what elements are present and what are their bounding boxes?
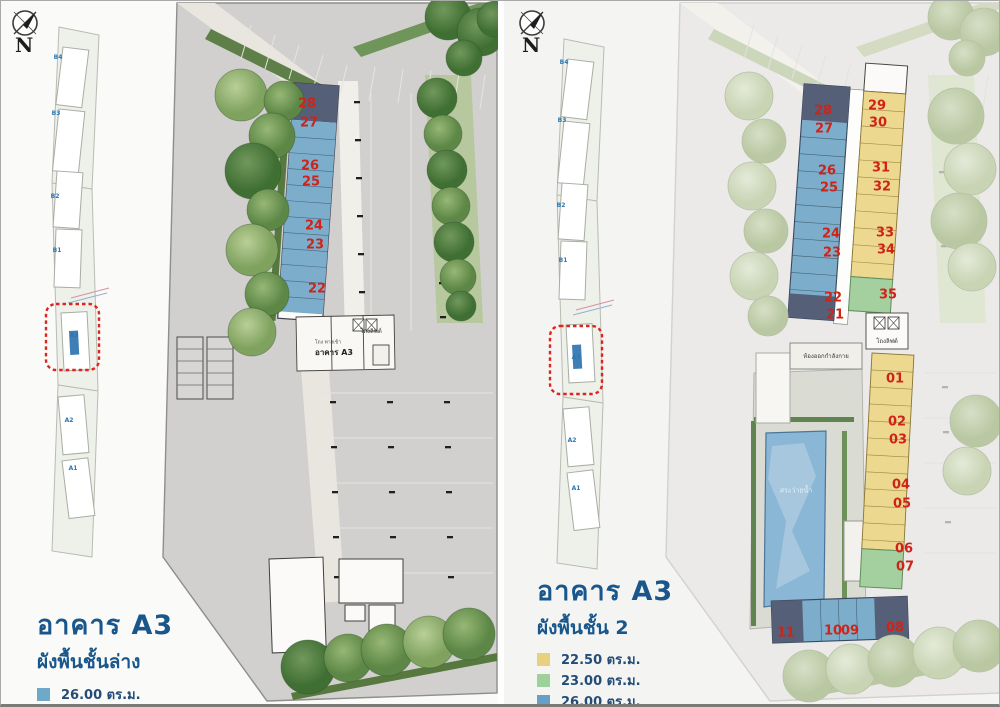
lobby-block — [756, 353, 790, 423]
compass-north-label: N — [522, 33, 540, 57]
legend: 26.00 ตร.ม. 26.50 ตร.ม. — [37, 683, 173, 707]
legend-swatch — [537, 674, 550, 687]
legend-item: 22.50 ตร.ม. — [537, 649, 673, 670]
legend-item: 23.00 ตร.ม. — [537, 670, 673, 691]
minimap-site-strip — [46, 27, 109, 557]
building-a3-floor2-upper — [788, 59, 908, 327]
legend-item: 26.00 ตร.ม. — [537, 691, 673, 707]
legend-label: 22.50 ตร.ม. — [561, 649, 641, 670]
panel-title: อาคาร A3 — [37, 603, 173, 646]
legend-swatch — [537, 695, 550, 707]
floorplan-sheet: 28272625242322 B4B3B2B1A3A2A1 โถงลิฟต์โถ… — [0, 0, 1000, 707]
east-wing-green-35 — [848, 277, 892, 314]
minimap-site-strip — [550, 39, 614, 569]
minimap-a3-highlight — [69, 331, 79, 355]
service-block — [296, 315, 395, 371]
swimming-pool — [764, 431, 826, 607]
legend-item: 26.00 ตร.ม. — [37, 683, 173, 705]
panel-second-floor: 2827262524232221293031323334350102030405… — [504, 1, 1000, 707]
lift-block — [866, 313, 908, 349]
title-block-ground: อาคาร A3 ผังพื้นชั้นล่าง 26.00 ตร.ม. 26.… — [37, 603, 173, 707]
panel-ground-floor: 28272625242322 B4B3B2B1A3A2A1 โถงลิฟต์โถ… — [1, 1, 498, 707]
legend-label: 26.00 ตร.ม. — [61, 684, 141, 705]
panel-subtitle: ผังพื้นชั้น 2 — [537, 613, 673, 643]
panel-subtitle: ผังพื้นชั้นล่าง — [37, 647, 173, 677]
compass-north-label: N — [15, 33, 33, 57]
site-plan-art-ground — [1, 1, 498, 707]
legend-swatch — [37, 688, 50, 701]
panel-title: อาคาร A3 — [537, 569, 673, 612]
compass-icon — [520, 11, 544, 35]
legend-label: 23.00 ตร.ม. — [561, 670, 641, 691]
fitness-room — [790, 343, 862, 369]
minimap-a3-highlight — [572, 345, 582, 369]
legend-swatch — [537, 653, 550, 666]
compass-icon — [13, 11, 37, 35]
title-block-floor2: อาคาร A3 ผังพื้นชั้น 2 22.50 ตร.ม. 23.00… — [537, 569, 673, 707]
legend: 22.50 ตร.ม. 23.00 ตร.ม. 26.00 ตร.ม. 26.5… — [537, 649, 673, 707]
legend-label: 26.00 ตร.ม. — [561, 691, 641, 707]
east-wing-lobby — [864, 63, 908, 94]
